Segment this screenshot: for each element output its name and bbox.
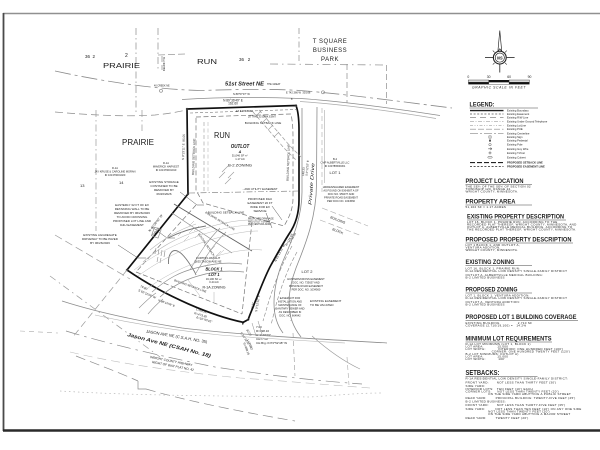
svg-text:THE GREAT: THE GREAT <box>267 83 281 86</box>
svg-text:PER DOC NO. 1034560: PER DOC NO. 1034560 <box>327 199 356 203</box>
svg-text:PROPOSED SETBACK LINE: PROPOSED SETBACK LINE <box>507 161 543 165</box>
svg-text:51,102 SF = 1.17 ACRES: 51,102 SF = 1.17 ACRES <box>466 205 507 209</box>
svg-text:Existing Centerline: Existing Centerline <box>507 131 530 135</box>
svg-text:KALLAND CT NE: KALLAND CT NE <box>162 57 166 71</box>
svg-text:13: 13 <box>80 183 85 188</box>
svg-text:BUSINESS: BUSINESS <box>313 48 347 54</box>
svg-text:EX 8' BIT TRAIL: EX 8' BIT TRAIL <box>236 110 254 113</box>
svg-text:Existing Sign: Existing Sign <box>507 135 523 139</box>
svg-text:PARK: PARK <box>321 57 339 63</box>
svg-text:LEGEND:: LEGEND: <box>470 102 495 109</box>
svg-text:LOT 1: LOT 1 <box>329 170 341 175</box>
svg-text:36 2: 36 2 <box>239 57 251 62</box>
svg-text:A: A <box>238 150 242 154</box>
svg-text:MAINTENANCE OF: MAINTENANCE OF <box>278 303 302 307</box>
svg-text:B-2 ZONING: B-2 ZONING <box>228 164 252 168</box>
svg-text:Existing Under Ground Telephon: Existing Under Ground Telephone <box>507 120 548 124</box>
svg-text:BLOCK 1: BLOCK 1 <box>206 267 223 272</box>
svg-text:0.44 AC: 0.44 AC <box>209 280 219 284</box>
svg-text:ID 101376001010: ID 101376001010 <box>156 168 177 172</box>
svg-text:14: 14 <box>119 180 124 185</box>
svg-text:R-1A: R-1A <box>163 161 169 165</box>
svg-text:AS FOUND ON EXHIBIT A OF: AS FOUND ON EXHIBIT A OF <box>323 189 359 193</box>
svg-text:1.17 AC: 1.17 AC <box>235 157 245 161</box>
svg-text:20' TRAIL & SDWK ESMT: 20' TRAIL & SDWK ESMT <box>248 116 276 119</box>
svg-text:PER DOC. NO. 1034560: PER DOC. NO. 1034560 <box>292 288 321 292</box>
svg-text:51st Street NE: 51st Street NE <box>225 82 264 88</box>
svg-text:WRIGHT COUNTY, MINNESOTA.: WRIGHT COUNTY, MINNESOTA. <box>466 248 519 252</box>
svg-text:N 89°57'07" W: N 89°57'07" W <box>233 92 250 96</box>
svg-text:90: 90 <box>528 75 532 79</box>
svg-text:TO BE VACATED: TO BE VACATED <box>310 303 334 307</box>
svg-text:RUN: RUN <box>197 59 217 66</box>
svg-text:R-1A: R-1A <box>112 166 118 170</box>
svg-text:PROPOSED LOT 1 BUILDING COVERA: PROPOSED LOT 1 BUILDING COVERAGE <box>466 314 577 321</box>
svg-text:PROPOSED EASEMENT LINE: PROPOSED EASEMENT LINE <box>507 165 545 169</box>
svg-text:HIDDEN/SHARED EASEMENT: HIDDEN/SHARED EASEMENT <box>323 185 360 189</box>
svg-text:MAVERICK HARVEST: MAVERICK HARVEST <box>153 165 180 169</box>
svg-text:LOT 1: LOT 1 <box>209 272 220 277</box>
svg-text:ID 101376001020: ID 101376001020 <box>105 173 126 177</box>
svg-text:Existing Guy Wire: Existing Guy Wire <box>507 147 529 151</box>
svg-text:06/26/2026: 06/26/2026 <box>156 192 171 196</box>
svg-text:CH.Brg.=N73°52'48" W: CH.Brg.=N73°52'48" W <box>256 341 287 345</box>
svg-text:30: 30 <box>487 75 491 79</box>
svg-text:COVERAGE (2,710/19,100) = 14: COVERAGE (2,710/19,100) = 14.2% <box>466 324 527 328</box>
svg-text:LOT 2: LOT 2 <box>301 269 313 274</box>
svg-text:JAY KRUSE & CAROLINE MORAN: JAY KRUSE & CAROLINE MORAN <box>95 170 136 174</box>
svg-text:LOT WIDTH: 100': LOT WIDTH: 100' <box>466 357 506 361</box>
svg-text:CMP ALBERTVILLE LLC: CMP ALBERTVILLE LLC <box>321 161 350 165</box>
svg-text:0: 0 <box>467 75 469 79</box>
svg-text:INSTALLATION AND: INSTALLATION AND <box>278 300 302 304</box>
svg-text:HUNTERS/CROSS EASEMENT: HUNTERS/CROSS EASEMENT <box>287 277 325 281</box>
svg-text:Existing R/W Line: Existing R/W Line <box>507 115 529 119</box>
svg-text:60: 60 <box>507 75 511 79</box>
svg-text:PRAIRIE: PRAIRIE <box>122 138 154 147</box>
svg-text:36 2: 36 2 <box>85 54 96 59</box>
svg-text:PRIVATE ROAD EASEMENT: PRIVATE ROAD EASEMENT <box>289 284 323 288</box>
svg-text:T SQUARE: T SQUARE <box>313 39 348 45</box>
svg-text:ID 103786500301: ID 103786500301 <box>325 164 346 168</box>
svg-text:Existing Easement: Existing Easement <box>507 112 530 116</box>
svg-text:THE RECORDED PLAT THEREOF, WRI: THE RECORDED PLAT THEREOF, WRIGHT COUNTY… <box>467 228 576 232</box>
svg-text:B-2 LIMITED BUSINESS: B-2 LIMITED BUSINESS <box>466 276 505 280</box>
svg-text:PRIVATE ROAD EASEMENT: PRIVATE ROAD EASEMENT <box>324 196 358 200</box>
svg-text:Existing T-Post: Existing T-Post <box>507 151 525 155</box>
svg-text:EXISTING ZONING: EXISTING ZONING <box>466 259 515 266</box>
svg-text:2: 2 <box>125 53 128 59</box>
svg-text:SERVICE: SERVICE <box>253 209 266 213</box>
svg-text:Existing LotLine: Existing LotLine <box>507 124 526 128</box>
svg-text:Existing Pole: Existing Pole <box>507 143 523 147</box>
svg-text:DOC NO. 959077 AND: DOC NO. 959077 AND <box>328 192 355 196</box>
svg-text:GRAPHIC SCALE IN FEET: GRAPHIC SCALE IN FEET <box>472 86 526 90</box>
svg-text:EASEMENT FOR: EASEMENT FOR <box>280 296 301 300</box>
svg-text:DOC. NO. 733637 AND: DOC. NO. 733637 AND <box>292 281 319 285</box>
svg-text:AND UTILITY EASMT: AND UTILITY EASMT <box>248 220 271 223</box>
svg-text:Existing Culvert: Existing Culvert <box>507 155 526 159</box>
svg-text:PRAIRIE: PRAIRIE <box>103 63 140 70</box>
svg-text:Existing Boundary: Existing Boundary <box>507 109 529 113</box>
svg-text:BUILDING SETBACK LINE: BUILDING SETBACK LINE <box>245 121 282 125</box>
svg-text:162.60: 162.60 <box>228 102 238 106</box>
svg-text:WRIGHT COUNTY, MINNESOTA.: WRIGHT COUNTY, MINNESOTA. <box>466 190 519 194</box>
svg-text:D&U EASEMENT: D&U EASEMENT <box>120 223 144 227</box>
svg-text:Existing PUE: Existing PUE <box>507 127 523 131</box>
svg-text:RUN: RUN <box>214 131 230 140</box>
svg-text:...AND UTILITY EASEMENT: ...AND UTILITY EASEMENT <box>242 187 278 191</box>
svg-text:PROPOSED ZONING: PROPOSED ZONING <box>466 287 518 294</box>
svg-text:R-1A ZONING: R-1A ZONING <box>203 286 226 290</box>
svg-text:E 742.366 W 301.66: E 742.366 W 301.66 <box>286 91 311 95</box>
svg-text:B-2 LIMITED BUSINESS: B-2 LIMITED BUSINESS <box>466 303 505 307</box>
svg-text:BY 06/26/2026: BY 06/26/2026 <box>90 241 110 245</box>
svg-text:NS: NS <box>497 56 503 61</box>
svg-text:40 CREEK NE: 40 CREEK NE <box>154 85 170 88</box>
svg-text:Existing Pedestal: Existing Pedestal <box>507 139 528 143</box>
svg-text:B-2: B-2 <box>333 157 338 161</box>
svg-text:REAR YARD: TWENTY FEET: REAR YARD: TWENTY FEET (20') <box>466 416 529 420</box>
